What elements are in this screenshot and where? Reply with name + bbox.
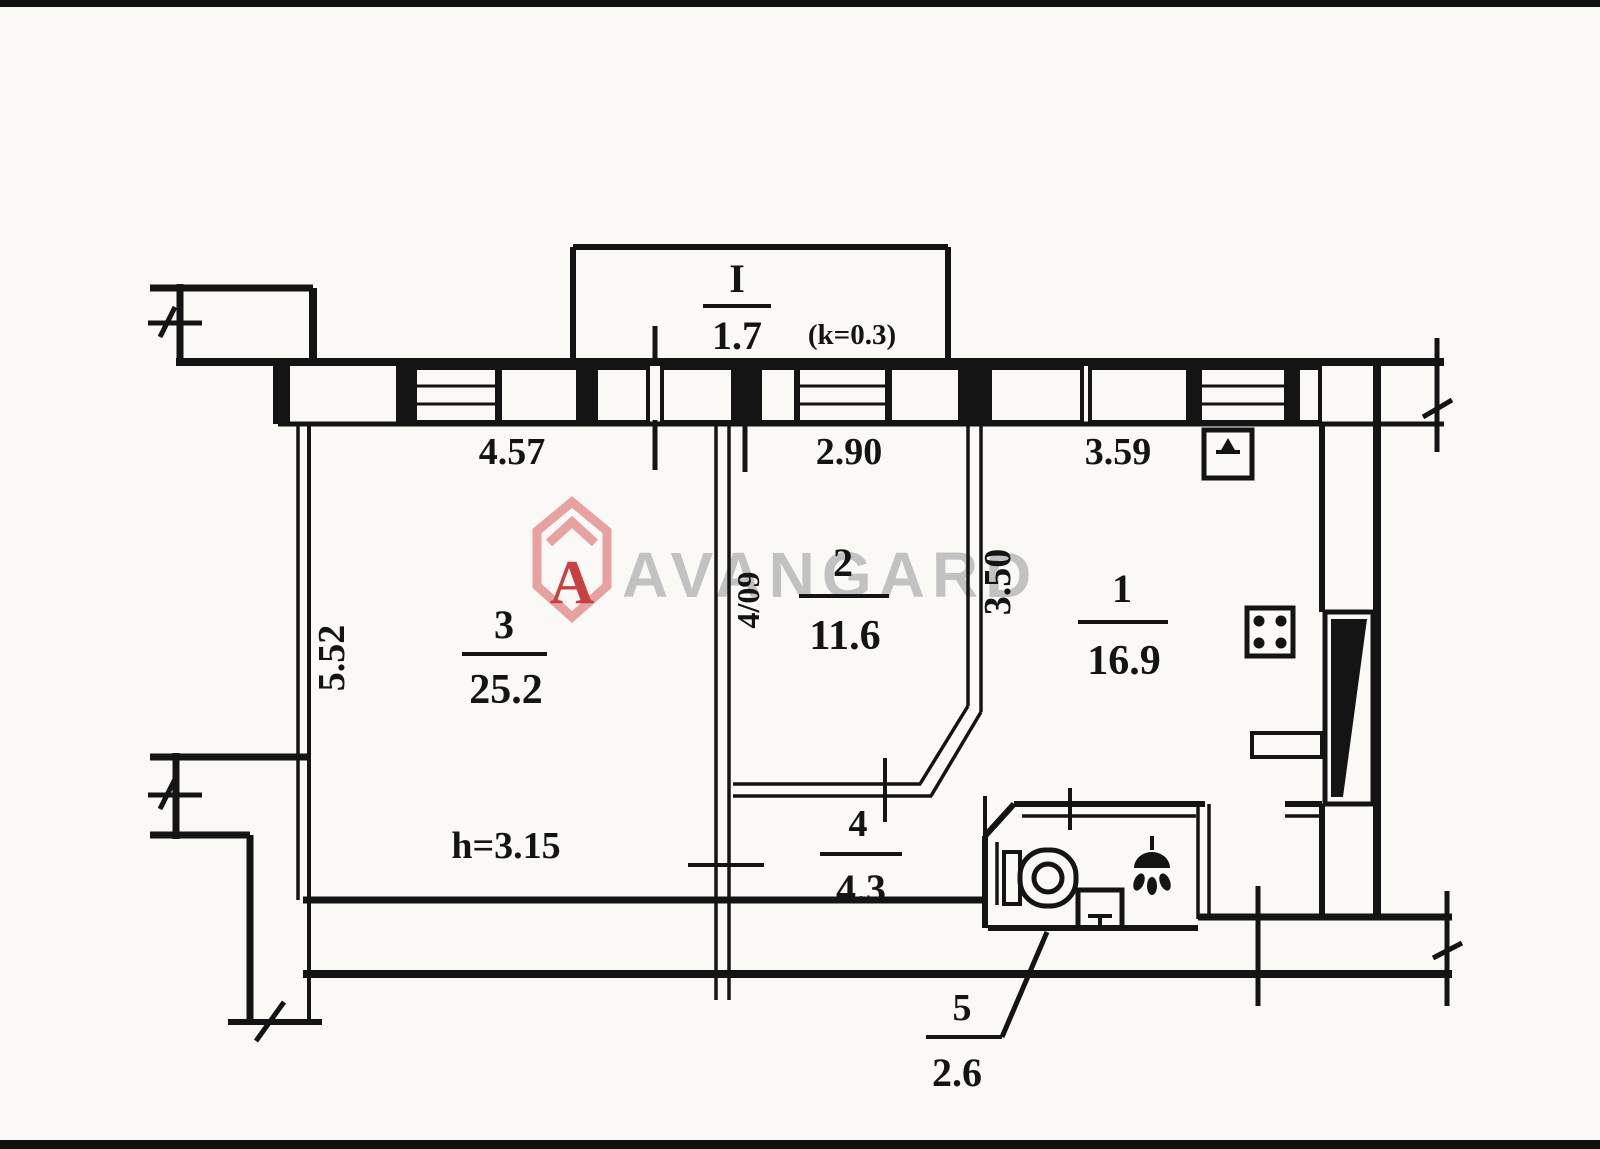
- dimension-ticks: [655, 420, 1258, 1006]
- wall-break-top-right: [1423, 338, 1452, 452]
- interior-walls: [688, 424, 985, 1000]
- registration-number: 4/09: [730, 572, 766, 629]
- shower-head-icon: [1131, 836, 1173, 895]
- room-1-area: 16.9: [1087, 638, 1161, 684]
- window-band: [273, 364, 1320, 478]
- floor-plan-page: A AVANGARD: [0, 0, 1600, 1149]
- dimension-top-middle: 2.90: [816, 431, 883, 473]
- room-4-number: 4: [849, 803, 868, 845]
- watermark-logo-icon: A: [537, 502, 607, 617]
- vent-box-icon: [1204, 430, 1252, 478]
- dimension-left-side: 5.52: [311, 625, 353, 692]
- room-2-number: 2: [833, 540, 853, 585]
- watermark-logo-letter: A: [550, 549, 595, 617]
- floor-plan-drawing: A AVANGARD: [0, 0, 1600, 1149]
- ceiling-height: h=3.15: [451, 825, 560, 867]
- room-2-area: 11.6: [809, 613, 880, 659]
- scan-edge-bottom: [0, 1140, 1600, 1149]
- stove-icon: [1247, 608, 1293, 656]
- room-4-area: 4.3: [836, 866, 886, 911]
- toilet-icon: [1004, 850, 1076, 906]
- watermark-brand-text: AVANGARD: [622, 539, 1038, 611]
- window-sill-hatched: [415, 368, 1286, 422]
- wall-break-top-left: [148, 307, 202, 337]
- balcony-area: 1.7: [712, 313, 762, 358]
- wall-break-bottom-right: [1433, 891, 1462, 1006]
- balcony-number: I: [729, 256, 745, 301]
- kitchen-fixtures: [1247, 608, 1373, 804]
- scan-edge-top: [0, 0, 1600, 7]
- room-3-area: 25.2: [469, 667, 543, 713]
- watermark: A AVANGARD: [537, 502, 1038, 617]
- vent-duct-icon: [1325, 612, 1373, 804]
- dimension-top-right: 3.59: [1085, 431, 1152, 473]
- sink-icon: [1078, 890, 1122, 928]
- room-5-leader-line: [1002, 932, 1047, 1037]
- room-5-number: 5: [953, 987, 972, 1029]
- dimension-inner-vertical: 3.50: [977, 549, 1019, 616]
- room-1-number: 1: [1112, 566, 1132, 611]
- counter: [1252, 733, 1322, 757]
- room-3-number: 3: [494, 602, 514, 647]
- room-5-area: 2.6: [932, 1050, 982, 1095]
- balcony-coefficient: (k=0.3): [808, 319, 896, 351]
- dimension-top-left: 4.57: [479, 431, 546, 473]
- bathroom: [985, 788, 1322, 928]
